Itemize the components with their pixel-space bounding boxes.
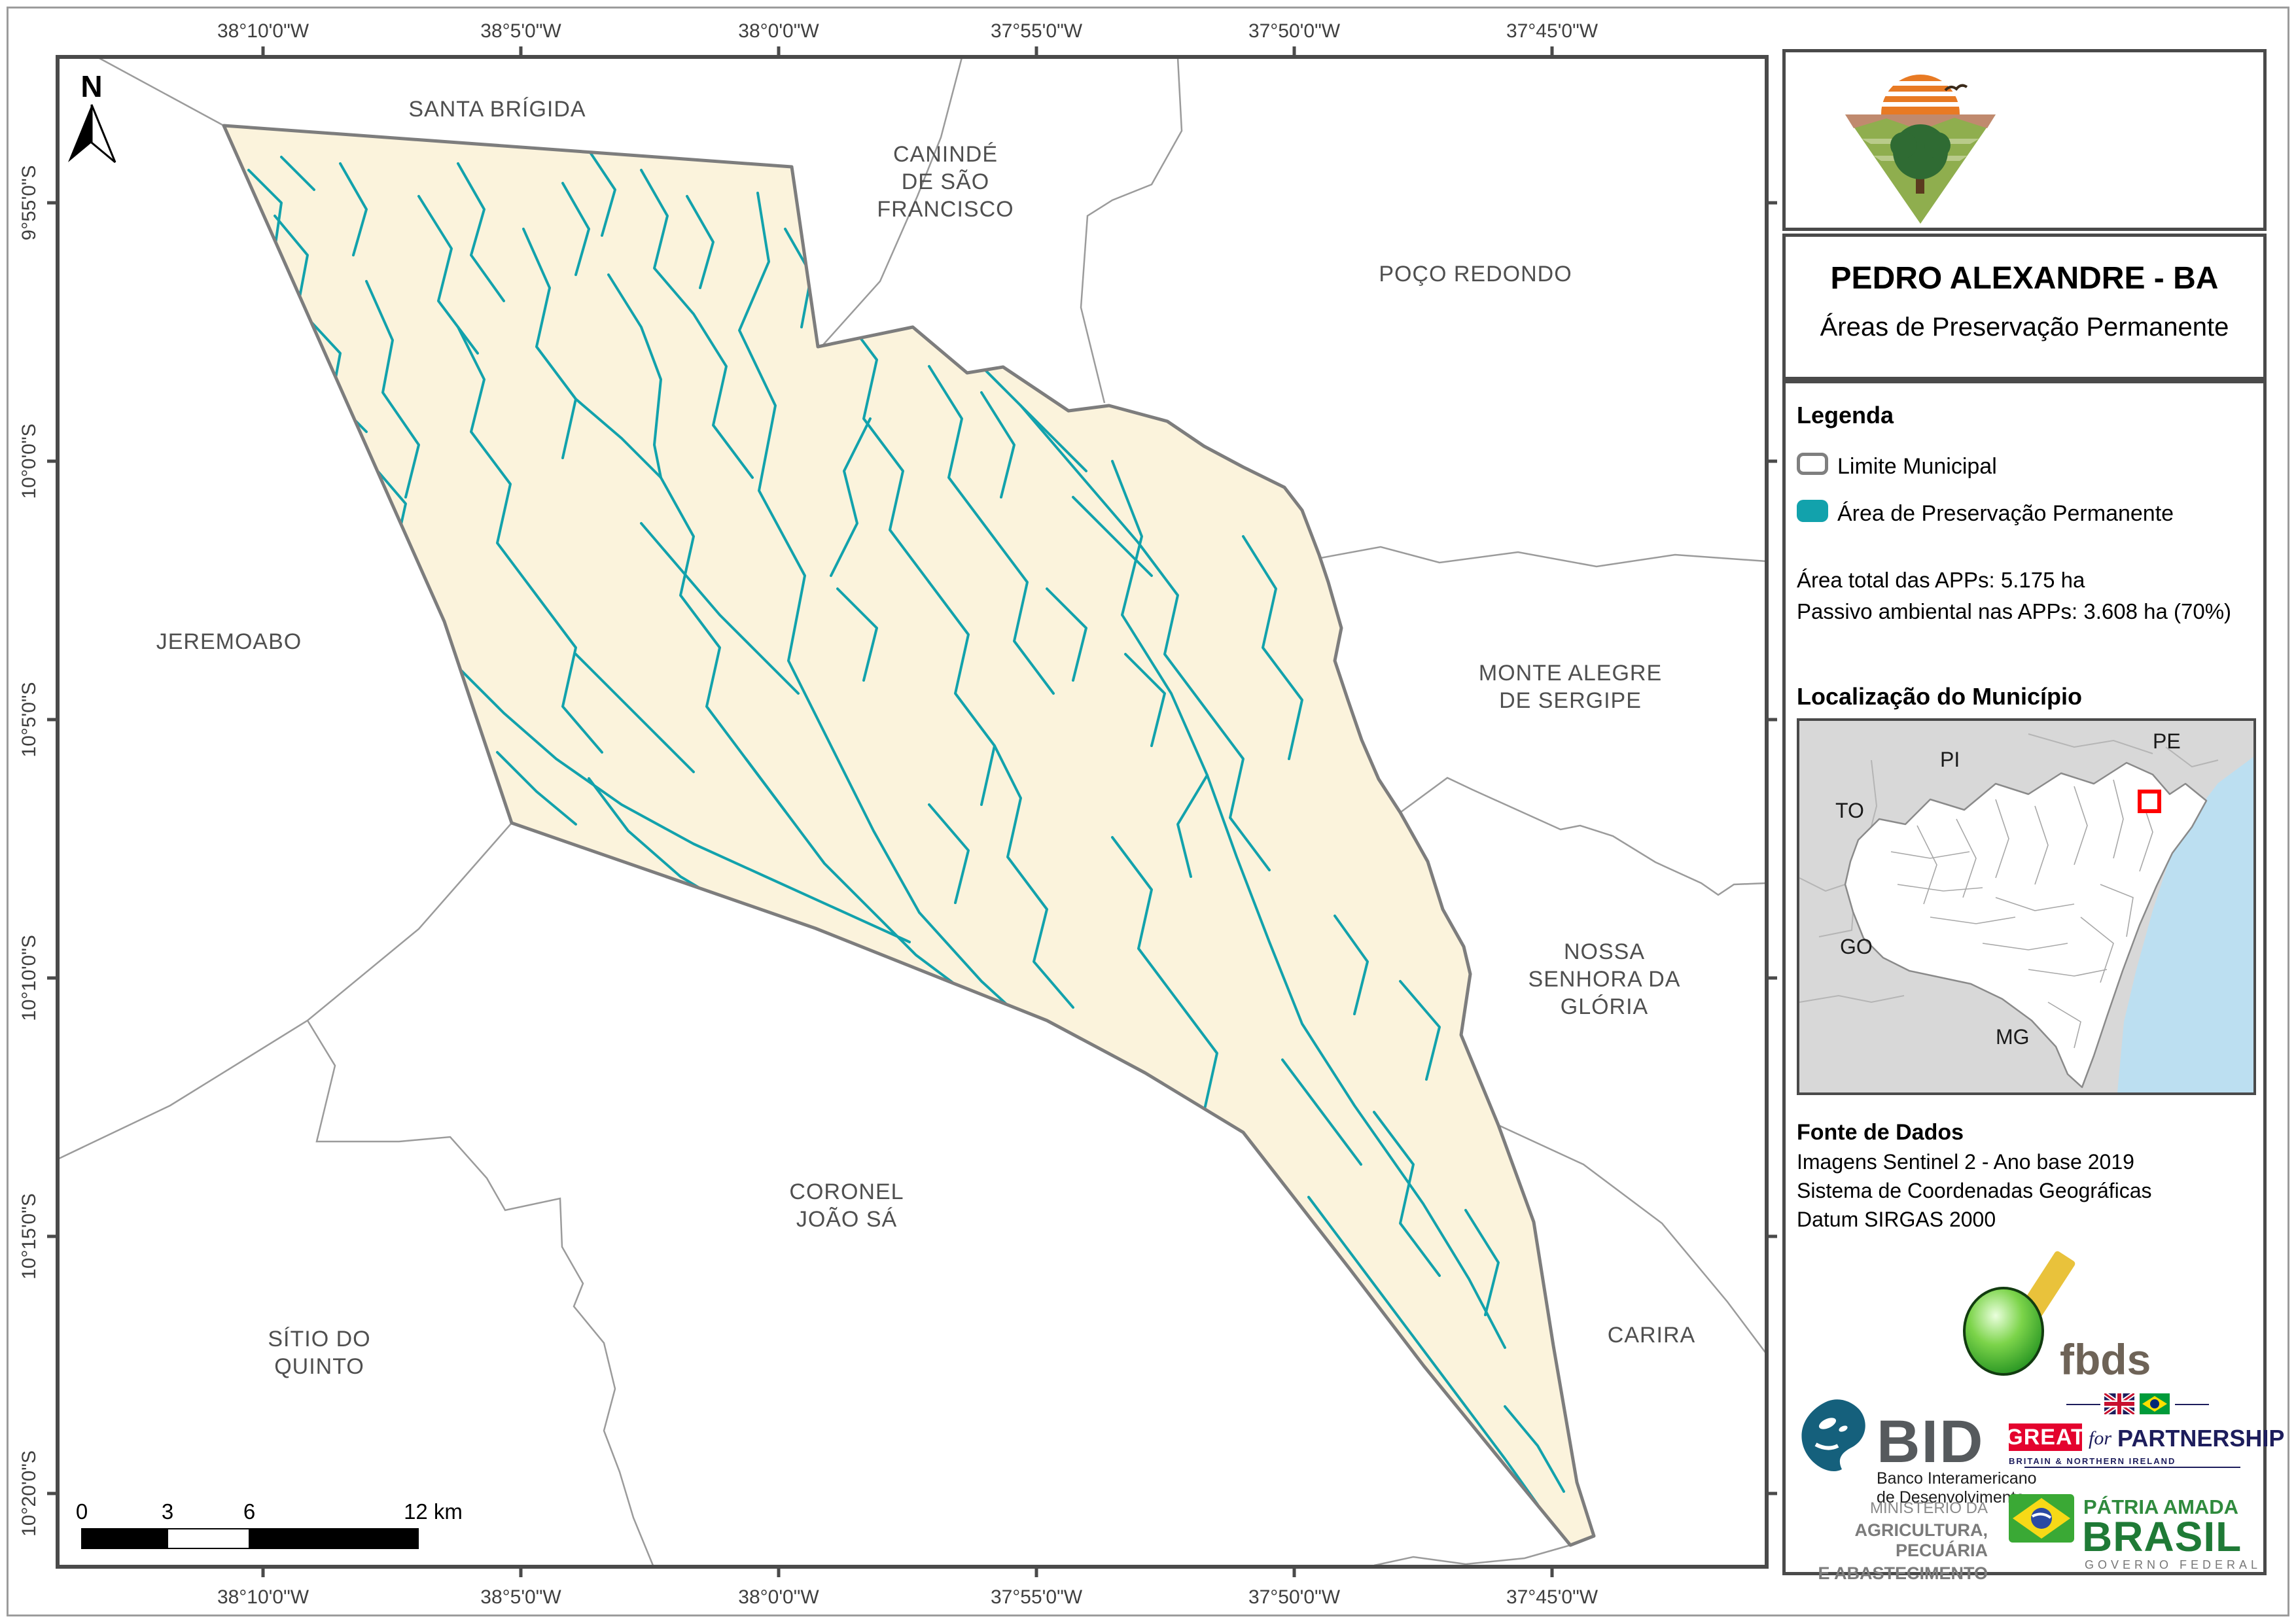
svg-text:37°50'0"W: 37°50'0"W [1248,1586,1341,1608]
fonte-line-1: Imagens Sentinel 2 - Ano base 2019 [1797,1150,2134,1174]
flag-rule-left [2066,1404,2100,1405]
svg-text:37°45'0"W: 37°45'0"W [1506,1586,1598,1608]
svg-text:MG: MG [1996,1025,2030,1049]
svg-text:10°5'0"S: 10°5'0"S [18,682,40,757]
svg-text:10°15'0"S: 10°15'0"S [18,1193,40,1280]
svg-text:10°20'0"S: 10°20'0"S [18,1450,40,1537]
great-subtitle: BRITAIN & NORTHERN IRELAND [2009,1456,2176,1466]
svg-text:MONTE ALEGREDE SERGIPE: MONTE ALEGREDE SERGIPE [1479,661,1662,713]
map-document: 38°10'0"W38°10'0"W38°5'0"W38°5'0"W38°0'0… [0,0,2296,1623]
svg-text:NOSSASENHORA DAGLÓRIA: NOSSASENHORA DAGLÓRIA [1528,939,1681,1019]
svg-text:38°10'0"W: 38°10'0"W [217,1586,309,1608]
legend-heading: Legenda [1797,402,1894,429]
legend-label-app: Área de Preservação Permanente [1837,501,2174,527]
legend-swatch-limite [1797,453,1828,475]
great-badge: GREAT [2009,1423,2082,1451]
localizacao-heading: Localização do Município [1797,683,2082,710]
page-subtitle: Áreas de Preservação Permanente [1782,313,2267,342]
flag-rule-right [2175,1404,2209,1405]
stat-passivo: Passivo ambiental nas APPs: 3.608 ha (70… [1797,599,2231,624]
rural-sustentavel-logo-icon [1835,52,2005,229]
ministerio-block: MINISTÉRIO DA AGRICULTURA, PECUÁRIA E AB… [1797,1499,1988,1584]
svg-text:CARIRA: CARIRA [1608,1323,1695,1348]
brasil-gov-flag-icon [2009,1494,2074,1543]
svg-text:3: 3 [162,1499,173,1524]
svg-text:12 km: 12 km [404,1499,463,1524]
svg-text:38°0'0"W: 38°0'0"W [738,1586,819,1608]
uk-flag-icon [2104,1393,2134,1414]
fbds-wordmark: fbds [2060,1335,2151,1384]
logo-box: RURAL SUSTENTÁVEL CAATINGA [1782,49,2267,231]
svg-text:SANTA BRÍGIDA: SANTA BRÍGIDA [408,97,586,122]
bid-logo-icon [1790,1399,1871,1480]
svg-text:10°10'0"S: 10°10'0"S [18,935,40,1021]
great-for: for [2089,1427,2111,1450]
fonte-heading: Fonte de Dados [1797,1120,1964,1145]
svg-text:37°50'0"W: 37°50'0"W [1248,20,1341,42]
svg-text:37°45'0"W: 37°45'0"W [1506,20,1598,42]
svg-text:N: N [80,69,102,103]
svg-text:9°55'0"S: 9°55'0"S [18,165,40,240]
stat-area-total: Área total das APPs: 5.175 ha [1797,568,2085,593]
svg-text:38°5'0"W: 38°5'0"W [480,20,561,42]
svg-text:38°10'0"W: 38°10'0"W [217,20,309,42]
svg-text:SÍTIO DOQUINTO: SÍTIO DOQUINTO [268,1327,370,1379]
legend-swatch-app [1797,500,1828,522]
svg-text:CORONELJOÃO SÁ: CORONELJOÃO SÁ [789,1179,904,1232]
svg-text:38°0'0"W: 38°0'0"W [738,20,819,42]
page-title: PEDRO ALEXANDRE - BA [1782,260,2267,296]
svg-text:38°5'0"W: 38°5'0"W [480,1586,561,1608]
inset-map: PIPETOGOMG [1797,718,2256,1095]
svg-text:TO: TO [1835,799,1864,822]
governo-federal-text: GOVERNO FEDERAL [2085,1558,2261,1572]
svg-text:0: 0 [76,1499,88,1524]
bid-wordmark: BID [1877,1408,1984,1476]
svg-text:JEREMOABO: JEREMOABO [156,629,302,654]
fonte-line-3: Datum SIRGAS 2000 [1797,1208,1996,1232]
legend-label-limite: Limite Municipal [1837,454,1997,480]
svg-text:37°55'0"W: 37°55'0"W [991,1586,1083,1608]
fonte-line-2: Sistema de Coordenadas Geográficas [1797,1179,2152,1203]
brazil-flag-icon [2140,1393,2170,1414]
svg-text:CANINDÉDE SÃOFRANCISCO: CANINDÉDE SÃOFRANCISCO [877,142,1014,222]
svg-text:PI: PI [1940,748,1960,771]
svg-text:POÇO REDONDO: POÇO REDONDO [1379,262,1572,287]
svg-text:GO: GO [1840,935,1873,958]
svg-text:10°0'0"S: 10°0'0"S [18,423,40,498]
title-box [1782,234,2267,380]
brasil-text: BRASIL [2082,1512,2242,1561]
great-rule [2024,1467,2240,1468]
svg-text:37°55'0"W: 37°55'0"W [991,20,1083,42]
svg-text:PE: PE [2153,729,2181,753]
great-partnership: PARTNERSHIP [2117,1425,2284,1452]
svg-text:6: 6 [243,1499,255,1524]
